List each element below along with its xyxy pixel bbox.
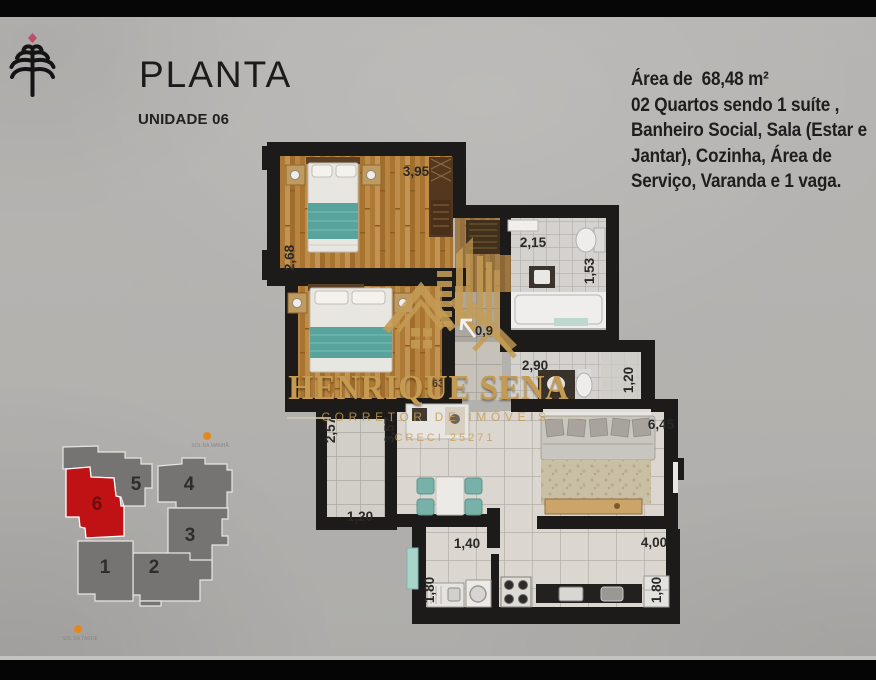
svg-text:0,9: 0,9 bbox=[475, 323, 493, 338]
svg-text:3: 3 bbox=[185, 525, 196, 546]
svg-text:2: 2 bbox=[149, 557, 160, 578]
svg-text:6: 6 bbox=[92, 494, 103, 515]
svg-text:5: 5 bbox=[131, 474, 142, 495]
svg-text:4: 4 bbox=[184, 474, 195, 495]
svg-text:1: 1 bbox=[100, 557, 111, 578]
svg-text:SOL DA TARDE: SOL DA TARDE bbox=[62, 636, 98, 642]
svg-text:SOL DA MANHÃ: SOL DA MANHÃ bbox=[191, 442, 229, 449]
